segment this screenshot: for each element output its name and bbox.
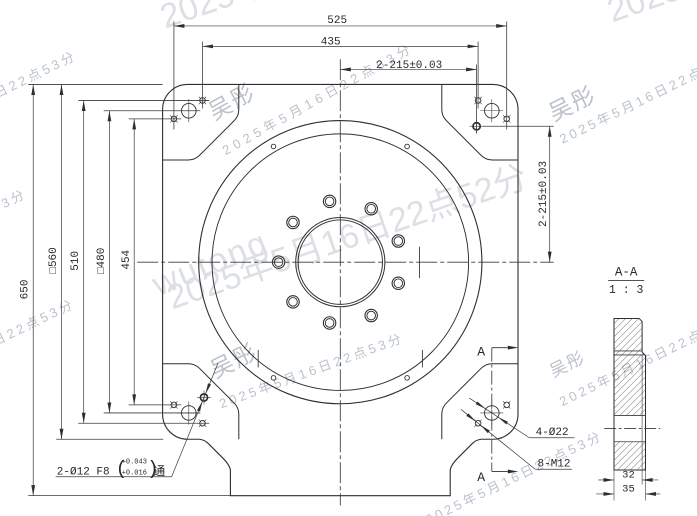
- svg-text:A-A: A-A: [615, 265, 638, 279]
- svg-text:2-Ø12 F8: 2-Ø12 F8: [57, 467, 110, 479]
- svg-text:+0.043: +0.043: [122, 458, 147, 466]
- svg-text:35: 35: [622, 483, 635, 495]
- svg-text:8-M12: 8-M12: [538, 459, 571, 471]
- svg-text:4-Ø22: 4-Ø22: [536, 427, 569, 439]
- svg-text:2-215±0.03: 2-215±0.03: [376, 60, 442, 72]
- svg-text:650: 650: [20, 280, 32, 300]
- svg-text:32: 32: [622, 469, 635, 481]
- svg-text:510: 510: [70, 251, 82, 271]
- svg-text:525: 525: [327, 15, 347, 27]
- svg-text:A: A: [477, 344, 485, 359]
- svg-text:1 : 3: 1 : 3: [609, 284, 644, 297]
- svg-text:454: 454: [121, 249, 133, 269]
- svg-text:2-215±0.03: 2-215±0.03: [538, 161, 550, 227]
- svg-text:435: 435: [321, 36, 341, 48]
- svg-text:通: 通: [153, 464, 165, 478]
- svg-text:□560: □560: [48, 247, 60, 273]
- svg-text:+0.016: +0.016: [122, 469, 147, 477]
- svg-text:□480: □480: [96, 248, 108, 274]
- svg-text:A: A: [477, 470, 485, 485]
